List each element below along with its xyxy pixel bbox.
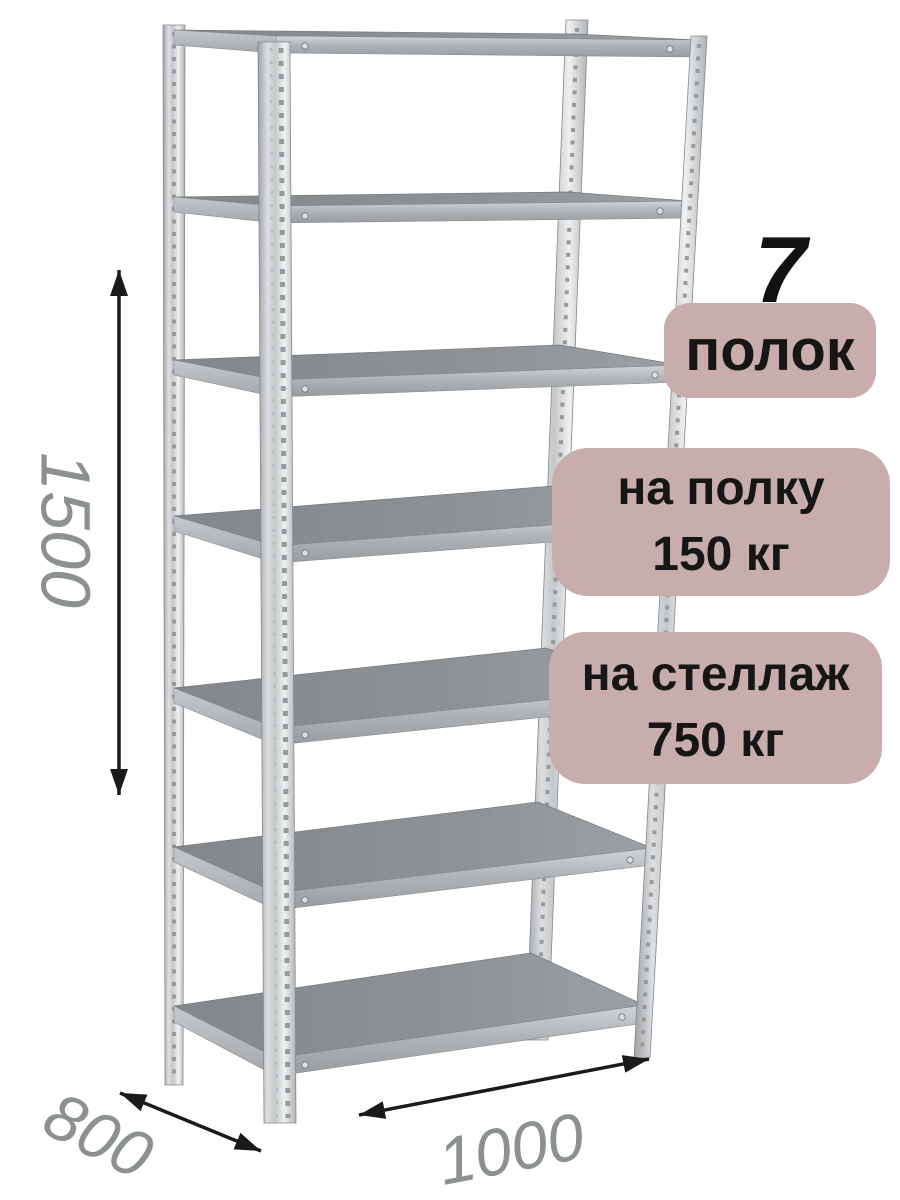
height-dimension-label: 1500: [27, 452, 105, 608]
badge-per-rack-line2: 750 кг: [647, 708, 784, 774]
post-front-left: [258, 42, 296, 1123]
width-dimension-label: 1000: [432, 1098, 591, 1199]
shelf: [174, 345, 680, 397]
badge-shelves-label: полок: [685, 317, 855, 384]
rack-figure: 1500 800 1000: [0, 0, 900, 1200]
shelf: [174, 953, 644, 1076]
badge-per-shelf-line2: 150 кг: [652, 522, 789, 588]
depth-dimension-label: 800: [33, 1077, 165, 1193]
shelf: [174, 30, 698, 57]
width-dimension-arrow: [359, 1059, 649, 1115]
product-image: 1500 800 1000 7 полок на полку 150 кг на…: [0, 0, 900, 1200]
shelf: [174, 802, 652, 910]
post-back-left: [163, 25, 185, 1085]
badge-per-shelf-line1: на полку: [617, 456, 824, 522]
shelf: [174, 192, 689, 223]
badge-per-rack-line1: на стеллаж: [582, 642, 850, 708]
badge-shelves: полок: [664, 303, 876, 398]
badge-load-per-shelf: на полку 150 кг: [552, 448, 890, 596]
badge-load-per-rack: на стеллаж 750 кг: [549, 632, 882, 784]
